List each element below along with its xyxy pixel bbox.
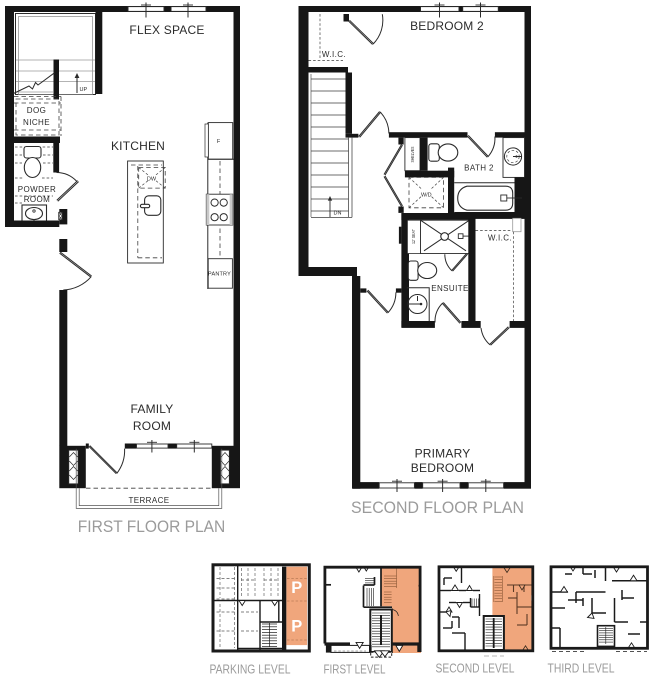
svg-text:FIRST FLOOR PLAN: FIRST FLOOR PLAN [78, 518, 226, 536]
svg-text:THIRD LEVEL: THIRD LEVEL [548, 661, 615, 676]
svg-text:PRIMARY: PRIMARY [415, 447, 471, 461]
svg-text:P: P [291, 618, 302, 636]
svg-text:KITCHEN: KITCHEN [111, 139, 165, 153]
svg-text:BEDROOM 2: BEDROOM 2 [410, 19, 484, 33]
svg-text:ROOM: ROOM [24, 195, 51, 204]
svg-text:ENSUITE: ENSUITE [431, 284, 468, 293]
svg-text:ROOM: ROOM [133, 419, 171, 433]
svg-text:P: P [291, 579, 302, 597]
svg-text:NICHE: NICHE [23, 118, 50, 127]
svg-text:FIRST LEVEL: FIRST LEVEL [324, 662, 386, 677]
svg-text:SHELVES: SHELVES [410, 147, 416, 163]
svg-text:DOG: DOG [27, 106, 46, 115]
svg-text:SECOND LEVEL: SECOND LEVEL [436, 661, 515, 676]
svg-text:12' SEAT: 12' SEAT [411, 229, 416, 244]
svg-text:W/D: W/D [421, 193, 432, 199]
svg-text:FAMILY: FAMILY [131, 402, 174, 416]
svg-text:DW: DW [147, 177, 157, 183]
svg-text:POWDER: POWDER [18, 185, 56, 194]
svg-text:SECOND FLOOR PLAN: SECOND FLOOR PLAN [351, 499, 524, 517]
svg-text:W.I.C.: W.I.C. [322, 50, 346, 59]
svg-text:PARKING LEVEL: PARKING LEVEL [210, 662, 291, 677]
svg-text:BATH 2: BATH 2 [464, 164, 494, 173]
svg-text:PANTRY: PANTRY [208, 272, 231, 278]
svg-text:FLEX SPACE: FLEX SPACE [129, 23, 204, 37]
svg-text:UP: UP [80, 87, 88, 93]
svg-text:W.I.C.: W.I.C. [488, 234, 512, 243]
svg-text:BEDROOM: BEDROOM [411, 461, 474, 475]
svg-text:DN: DN [334, 211, 342, 217]
svg-text:TERRACE: TERRACE [128, 496, 169, 505]
